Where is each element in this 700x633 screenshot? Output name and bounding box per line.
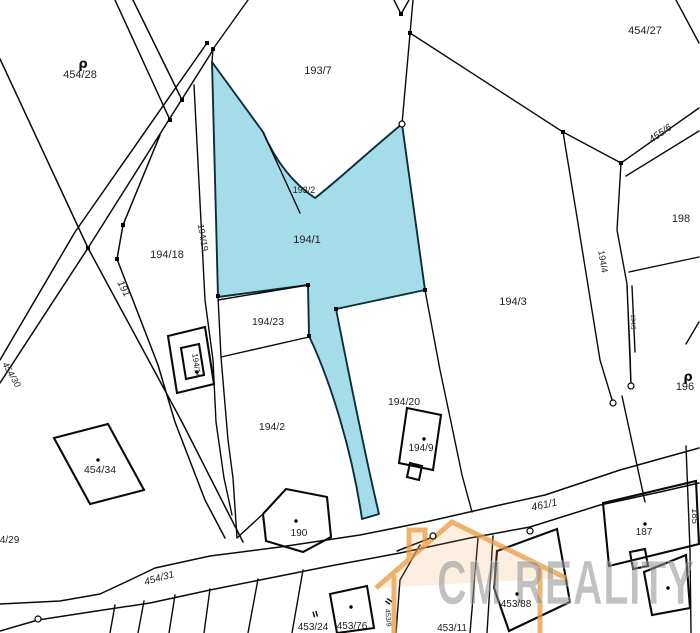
watermark-text: CM REALITY	[437, 549, 695, 618]
vertex-marker	[423, 288, 427, 292]
parcel-label-454-30: 454/30	[0, 360, 22, 389]
vertex-marker	[408, 31, 412, 35]
junction-marker	[628, 383, 634, 389]
parcel-label-194-9: 194/9	[408, 443, 433, 454]
junction-marker	[430, 533, 436, 539]
parcel-label-194-20: 194/20	[388, 396, 420, 408]
vertex-marker	[205, 41, 209, 45]
parcel-label-461-1: 461/1	[530, 496, 558, 513]
landuse-symbol: ρ	[683, 370, 692, 385]
parcel-label-194-2: 194/2	[259, 421, 285, 433]
parcel-label-194-23: 194/23	[252, 316, 284, 328]
parcel-label-453-9: 453/9	[383, 609, 392, 627]
parcel-boundary-lines	[110, 0, 699, 633]
parcel-label-453-24: 453/24	[298, 622, 329, 633]
building-dot-marker	[643, 522, 646, 525]
parcel-label-190: 190	[291, 528, 308, 539]
parcel-label-453-88: 453/88	[501, 599, 532, 610]
vertex-marker	[306, 283, 310, 287]
vertex-marker	[211, 47, 215, 51]
survey-markers	[35, 12, 670, 622]
junction-marker	[610, 400, 616, 406]
vertex-marker	[86, 246, 90, 250]
highlighted-parcel-194-1[interactable]	[212, 62, 425, 519]
vertex-marker	[115, 257, 119, 261]
parcel-label-453-76: 453/76	[337, 621, 368, 632]
building-dot-marker	[515, 592, 518, 595]
building-dot-marker	[96, 458, 99, 461]
road-lines	[0, 0, 699, 631]
vertex-marker	[307, 334, 311, 338]
building-dot-marker	[666, 586, 669, 589]
building-dot-marker	[422, 437, 425, 440]
vertex-marker	[619, 161, 623, 165]
parcel-label-191: 191	[114, 279, 132, 299]
parcel-label-198: 198	[672, 213, 690, 225]
landuse-symbol: ρ	[78, 57, 87, 72]
building-dot-marker	[349, 605, 352, 608]
parcel-label-454-29: 454/29	[0, 535, 20, 546]
parcel-label-194-4: 194/4	[596, 250, 609, 274]
vertex-marker	[216, 294, 220, 298]
parcel-label-454-27: 454/27	[628, 25, 662, 37]
junction-marker	[399, 121, 405, 127]
parcel-label-454-34: 454/34	[84, 464, 116, 476]
parcel-label-194-19: 194/19	[196, 223, 211, 252]
junction-marker	[527, 528, 533, 534]
boundary-symbol: II	[311, 609, 319, 619]
parcel-label-453-11: 453/11	[437, 623, 467, 633]
parcel-label-194-1: 194/1	[293, 234, 321, 246]
parcel-label-185: 185	[689, 508, 700, 524]
vertex-marker	[399, 12, 403, 16]
parcel-label-193-7: 193/7	[304, 65, 332, 77]
parcel-label-455-6: 455/6	[647, 122, 674, 146]
vertex-marker	[121, 223, 125, 227]
vertex-marker	[168, 118, 172, 122]
building-dot-marker	[294, 519, 297, 522]
parcel-label-194-3: 194/3	[499, 296, 527, 308]
vertex-marker	[334, 307, 338, 311]
junction-marker	[35, 616, 41, 622]
parcel-label-194-5: 194/5	[629, 314, 635, 330]
watermark: CM REALITY	[376, 522, 695, 633]
vertex-marker	[561, 130, 565, 134]
cadastral-map: CM REALITY 454/28193/7454/27455/6193/219…	[0, 0, 700, 633]
parcel-label-193-2: 193/2	[293, 185, 316, 195]
cadastral-map-canvas: CM REALITY 454/28193/7454/27455/6193/219…	[0, 0, 700, 633]
parcel-label-187: 187	[636, 527, 653, 538]
vertex-marker	[180, 98, 184, 102]
parcel-label-194-18: 194/18	[150, 249, 184, 261]
